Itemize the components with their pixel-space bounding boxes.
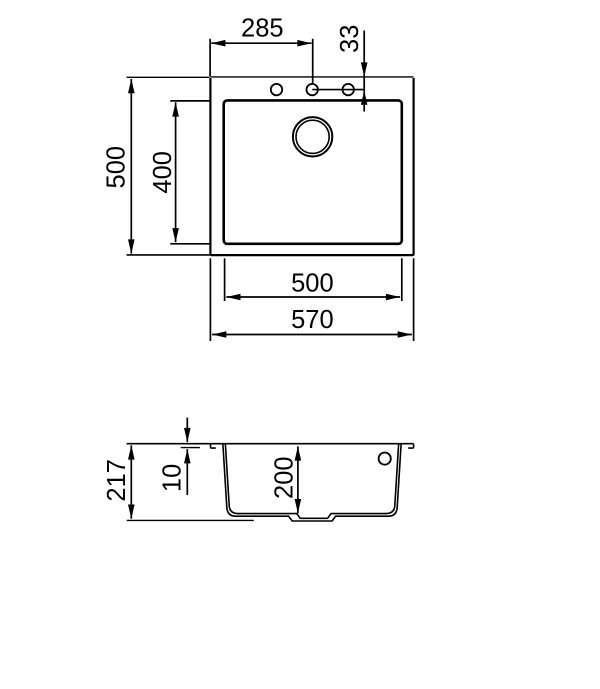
svg-text:217: 217 bbox=[103, 459, 131, 502]
svg-text:400: 400 bbox=[149, 151, 177, 194]
svg-text:570: 570 bbox=[291, 306, 334, 334]
svg-text:500: 500 bbox=[102, 146, 130, 189]
svg-text:33: 33 bbox=[336, 25, 364, 53]
svg-text:500: 500 bbox=[291, 269, 334, 297]
svg-text:285: 285 bbox=[241, 15, 284, 43]
svg-text:10: 10 bbox=[158, 464, 186, 492]
svg-text:200: 200 bbox=[271, 456, 299, 499]
